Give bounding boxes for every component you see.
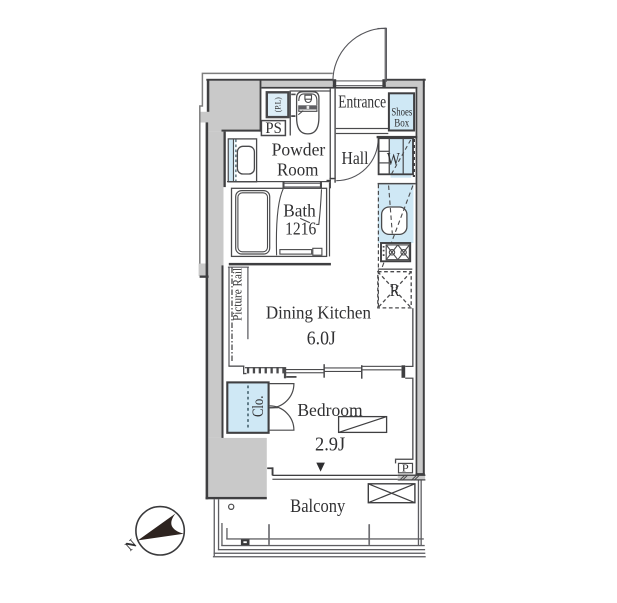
svg-text:Bedroom: Bedroom: [297, 400, 363, 420]
svg-text:Box: Box: [394, 118, 410, 130]
svg-text:R: R: [390, 282, 400, 301]
svg-text:(P.L): (P.L): [273, 97, 282, 112]
svg-text:W: W: [387, 150, 401, 169]
svg-text:1216: 1216: [285, 218, 316, 238]
svg-text:Balcony: Balcony: [290, 495, 345, 516]
svg-text:Dining Kitchen: Dining Kitchen: [266, 302, 371, 323]
svg-text:2.9J: 2.9J: [315, 434, 346, 456]
svg-text:6.0J: 6.0J: [307, 328, 337, 350]
svg-text:Hall: Hall: [342, 148, 369, 168]
svg-text:Room: Room: [277, 159, 319, 180]
svg-text:Powder: Powder: [272, 139, 326, 159]
svg-text:PS: PS: [265, 119, 281, 137]
svg-text:Picture Rail: Picture Rail: [230, 267, 245, 321]
svg-text:P: P: [402, 461, 409, 474]
svg-text:Clo.: Clo.: [250, 396, 267, 418]
svg-text:Entrance: Entrance: [338, 93, 386, 112]
